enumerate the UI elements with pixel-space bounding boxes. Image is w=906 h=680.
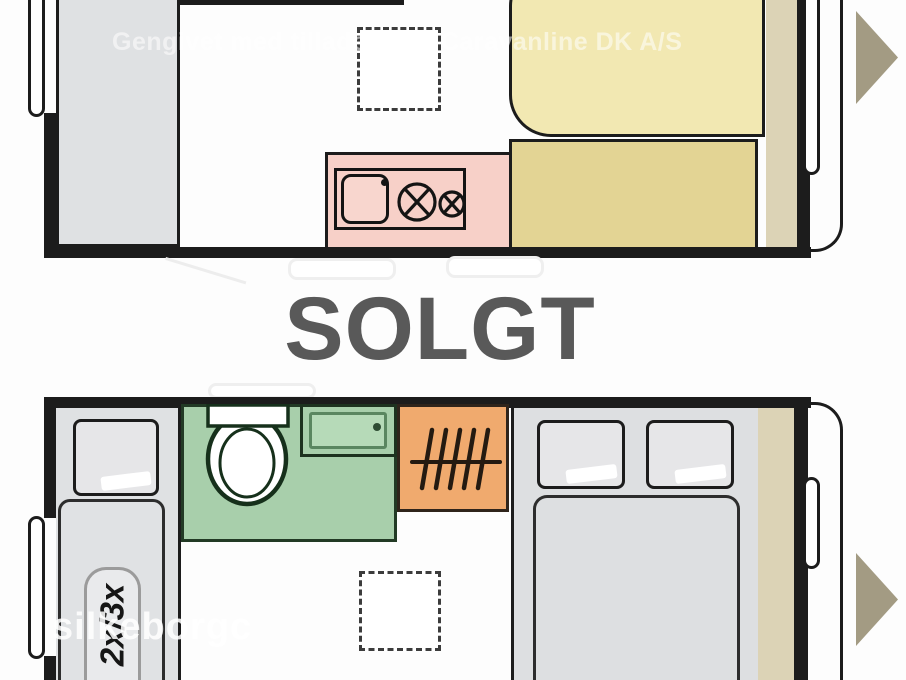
pillow-sheen: [101, 471, 152, 491]
wardrobe-cabinet: [56, 0, 180, 247]
clothes-rail-icon: [410, 427, 502, 491]
bed-capacity-label-box: 2x/3x: [84, 567, 141, 680]
entry-door: [28, 0, 45, 117]
side-shelf: [766, 0, 797, 247]
dinette-seat: [509, 0, 765, 137]
skylight-icon: [357, 27, 441, 111]
pillow-icon: [73, 419, 159, 496]
bed-capacity-label: 2x/3x: [94, 584, 132, 667]
pillow-icon: [646, 420, 734, 489]
drawbar-arrow-icon: [856, 553, 898, 646]
drawbar-arrow-icon: [856, 11, 898, 104]
skylight-icon: [359, 571, 441, 651]
faucet-dot-icon: [381, 179, 388, 186]
toilet-icon: [200, 404, 298, 507]
dinette-table: [509, 139, 758, 250]
left-wall: [44, 113, 56, 252]
pillow-sheen: [675, 464, 727, 484]
caravan-listing-image: Gengivet med tilladelse af Caravanline D…: [0, 0, 906, 680]
hob-burners-icon: [396, 178, 468, 228]
entry-door: [28, 516, 45, 659]
sold-status-text: SOLGT: [240, 284, 640, 380]
side-shelf: [758, 408, 794, 680]
double-bed: [533, 495, 740, 680]
floorplan-bottom: 2x/3x: [0, 395, 906, 680]
washbasin-faucet-dot: [373, 423, 381, 431]
left-wall-upper: [44, 408, 56, 518]
front-door-outline: [803, 0, 820, 175]
cutoff-artifact: [288, 258, 396, 280]
front-door-outline: [803, 477, 820, 569]
left-wall-lower: [44, 656, 56, 680]
top-wall-segment: [178, 0, 404, 5]
pillow-icon: [537, 420, 625, 489]
cutoff-artifact: [446, 256, 544, 278]
pillow-sheen: [566, 464, 618, 484]
floorplan-top: Gengivet med tilladelse af Caravanline D…: [0, 0, 906, 258]
cutoff-artifact-line: [165, 257, 246, 284]
